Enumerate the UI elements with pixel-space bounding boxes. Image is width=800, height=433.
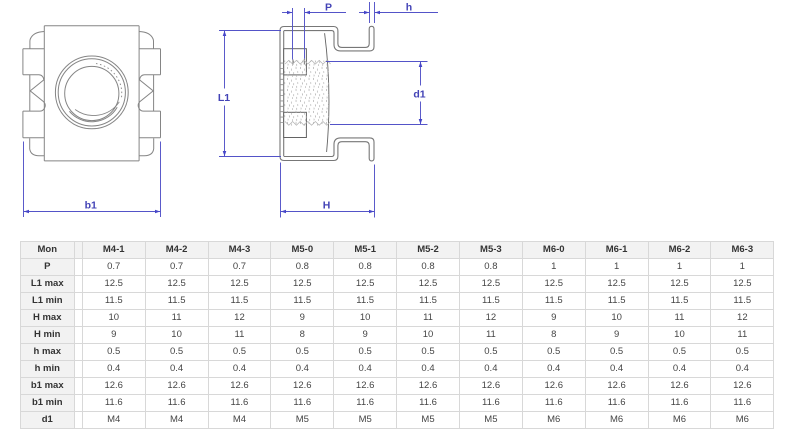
svg-text:d1: d1 xyxy=(413,89,425,101)
svg-text:L1: L1 xyxy=(218,92,230,104)
svg-text:b1: b1 xyxy=(85,200,97,212)
svg-text:h: h xyxy=(406,2,412,14)
svg-text:H: H xyxy=(323,200,331,212)
svg-text:P: P xyxy=(325,2,332,14)
